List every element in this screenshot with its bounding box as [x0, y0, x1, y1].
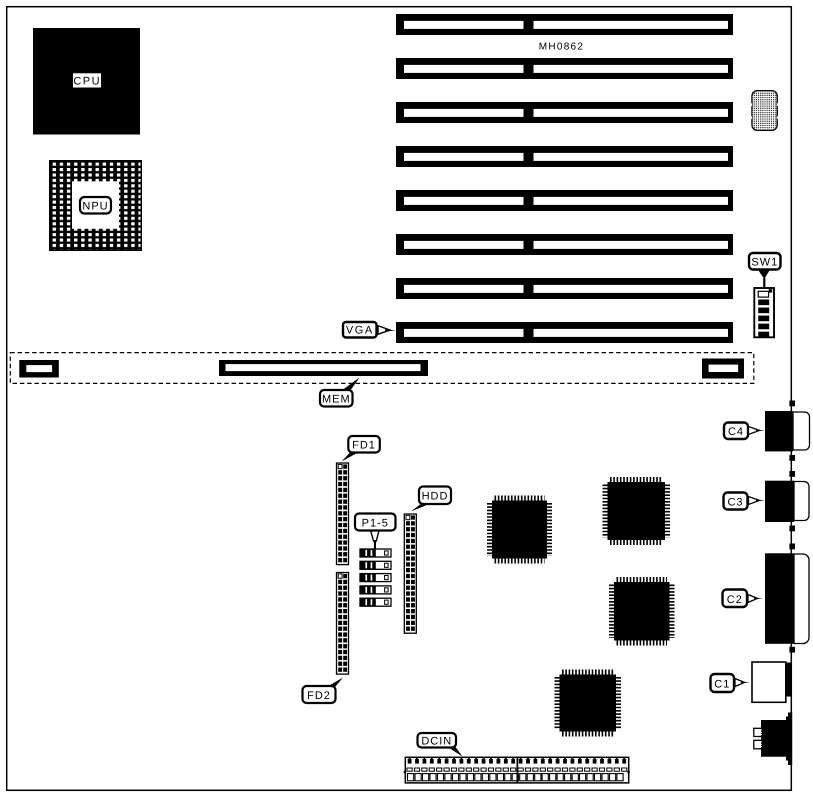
svg-text:C1: C1 — [714, 679, 730, 691]
svg-text:P1-5: P1-5 — [362, 518, 389, 530]
svg-text:HDD: HDD — [422, 491, 449, 503]
svg-text:NPU: NPU — [82, 200, 108, 212]
svg-text:FD1: FD1 — [352, 440, 376, 452]
svg-text:VGA: VGA — [346, 325, 374, 337]
svg-text:C3: C3 — [727, 497, 743, 509]
svg-text:C4: C4 — [728, 426, 744, 438]
svg-text:MEM: MEM — [322, 394, 351, 406]
svg-text:C2: C2 — [727, 594, 743, 606]
svg-text:MH0862: MH0862 — [539, 42, 585, 53]
svg-text:FD2: FD2 — [307, 690, 331, 702]
svg-text:CPU: CPU — [73, 75, 101, 87]
svg-text:DCIN: DCIN — [421, 735, 452, 747]
svg-text:SW1: SW1 — [751, 257, 778, 269]
